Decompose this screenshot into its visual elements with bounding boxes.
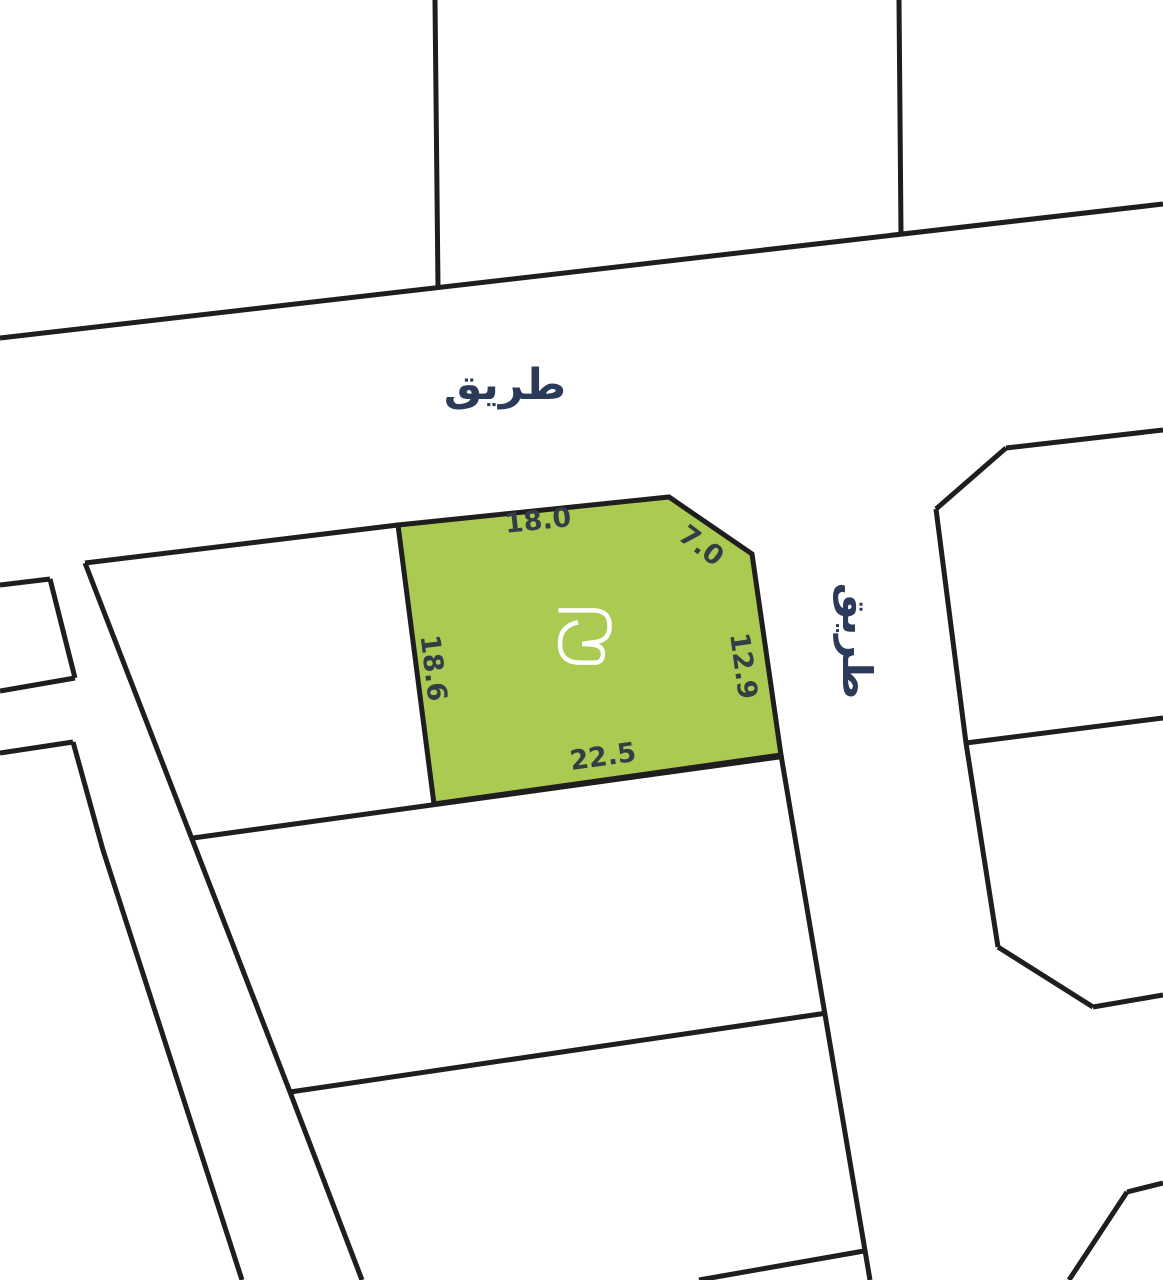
corner-plot-left-edge [1069, 1192, 1127, 1280]
lower-left-plot-top-edge [0, 742, 73, 753]
road-top-edge [0, 204, 1163, 338]
left-plot-top-edge [0, 579, 50, 585]
octagon-plot-divider [966, 718, 1163, 743]
row2-bottom-edge [290, 1013, 827, 1092]
lower-left-plot-right-edge [73, 742, 242, 1280]
octagon-plot-bottom-diagonal [998, 947, 1093, 1007]
top-right-plot-boundary [899, 0, 901, 234]
octagon-plot-top-edge [1006, 430, 1163, 448]
left-plot-bottom-edge [0, 678, 75, 691]
octagon-plot-chamfer [936, 448, 1006, 509]
top-left-plot-boundary [435, 0, 438, 288]
row3-bottom-edge [699, 1251, 864, 1280]
octagon-plot-bottom-edge [1093, 995, 1163, 1007]
road-label-vertical-road: طريق [833, 583, 881, 699]
plot-map-canvas[interactable]: 18.07.012.922.518.6طريقطريق [0, 0, 1163, 1280]
corner-plot-top-edge [1127, 1183, 1163, 1192]
left-plot-right-edge [50, 579, 75, 678]
octagon-plot-left-edge [936, 509, 998, 947]
road-label-horizontal-road: طريق [444, 360, 566, 410]
plot-map-svg: 18.07.012.922.518.6طريقطريق [0, 0, 1163, 1280]
row1-top-edge [85, 525, 398, 563]
